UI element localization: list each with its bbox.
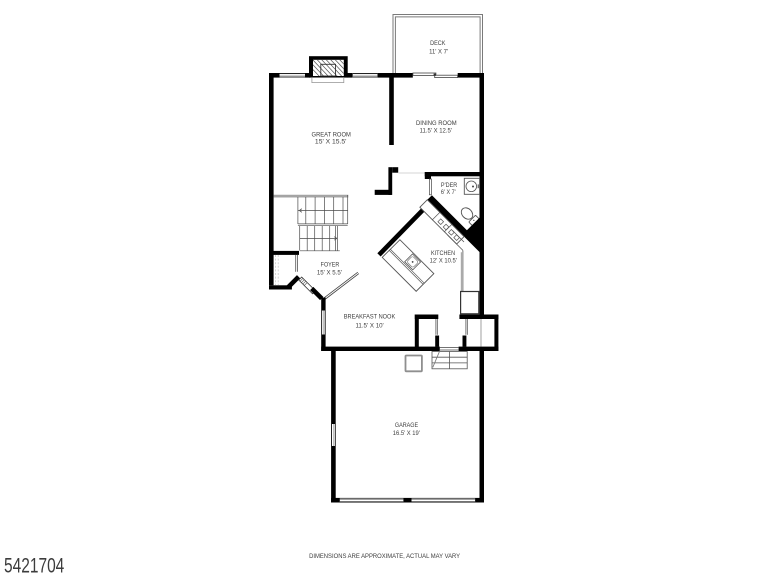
svg-text:DECK: DECK — [430, 40, 446, 47]
svg-text:P'DER: P'DER — [441, 182, 457, 189]
svg-text:16.5' X 19': 16.5' X 19' — [393, 430, 420, 437]
svg-text:6' X 7': 6' X 7' — [441, 189, 456, 196]
svg-text:11.5' X 10': 11.5' X 10' — [355, 322, 383, 329]
svg-text:DINING ROOM: DINING ROOM — [416, 120, 457, 127]
svg-text:5421704: 5421704 — [4, 555, 64, 576]
svg-text:DIMENSIONS ARE APPROXIMATE, AC: DIMENSIONS ARE APPROXIMATE, ACTUAL MAY V… — [309, 554, 460, 560]
svg-text:BREAKFAST NOOK: BREAKFAST NOOK — [344, 314, 396, 321]
svg-text:FOYER: FOYER — [321, 261, 340, 268]
svg-text:KITCHEN: KITCHEN — [431, 250, 455, 257]
svg-text:11.5' X 12.5': 11.5' X 12.5' — [420, 127, 452, 134]
svg-text:11' X 7': 11' X 7' — [429, 48, 448, 55]
svg-text:12' X 10.5': 12' X 10.5' — [430, 258, 457, 265]
svg-text:15' X 5.5': 15' X 5.5' — [317, 269, 342, 276]
svg-text:GARAGE: GARAGE — [395, 422, 419, 429]
svg-text:15' X 15.5': 15' X 15.5' — [315, 138, 347, 145]
